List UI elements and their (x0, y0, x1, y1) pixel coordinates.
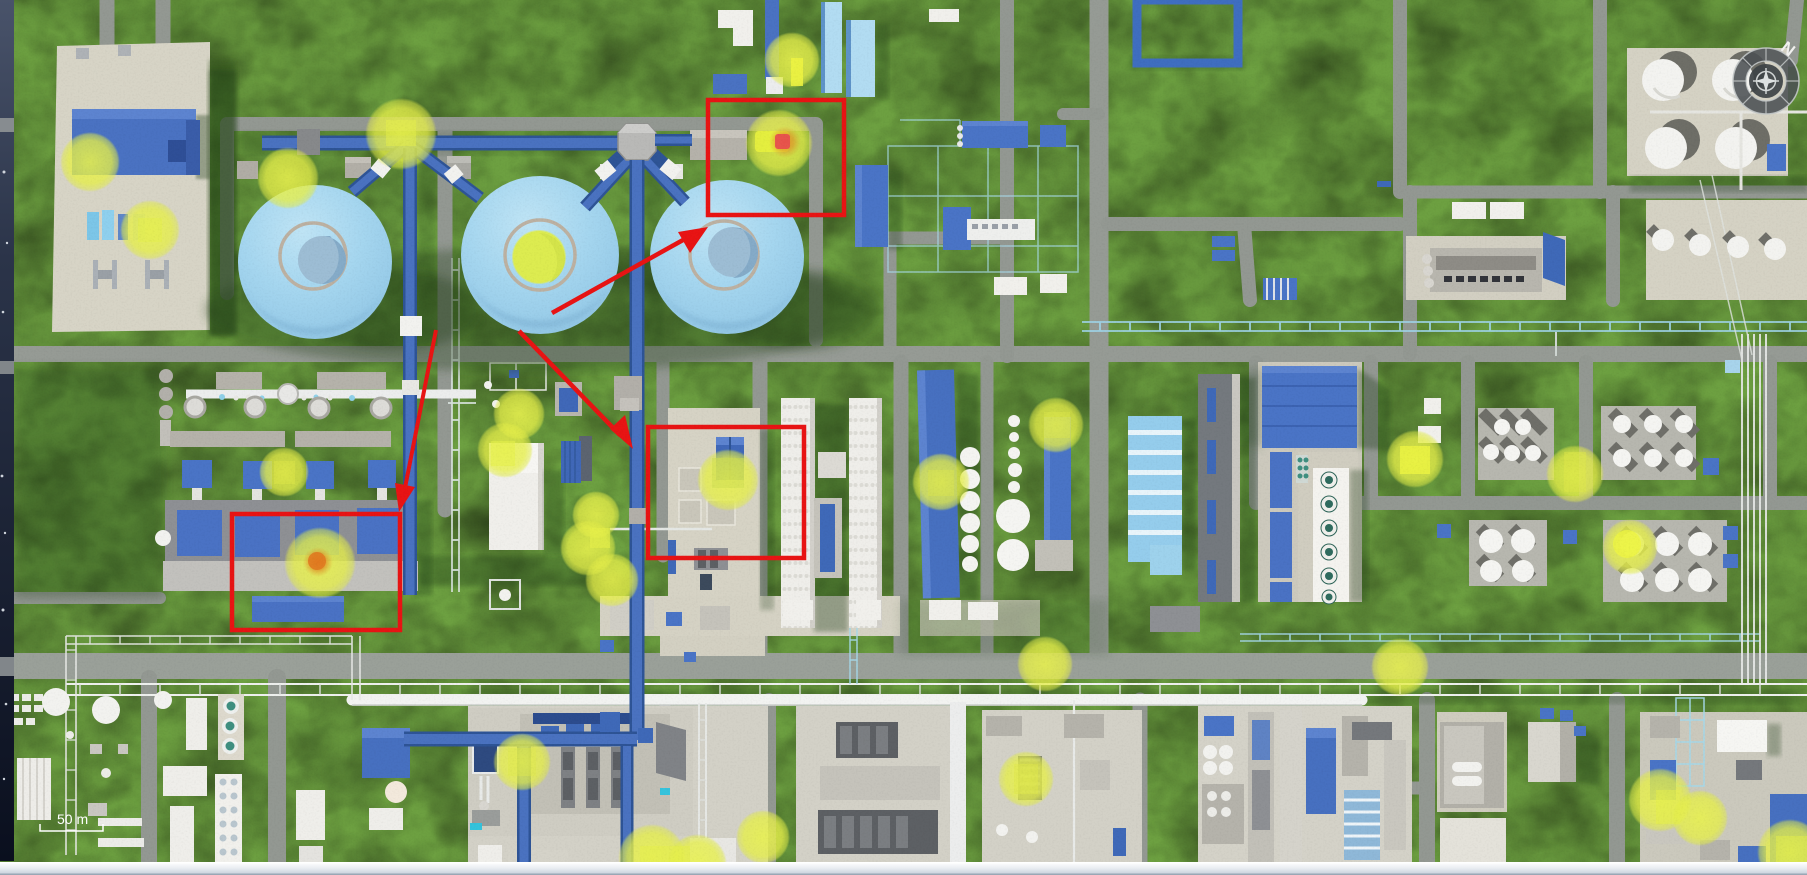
svg-text:50 m: 50 m (57, 811, 88, 827)
